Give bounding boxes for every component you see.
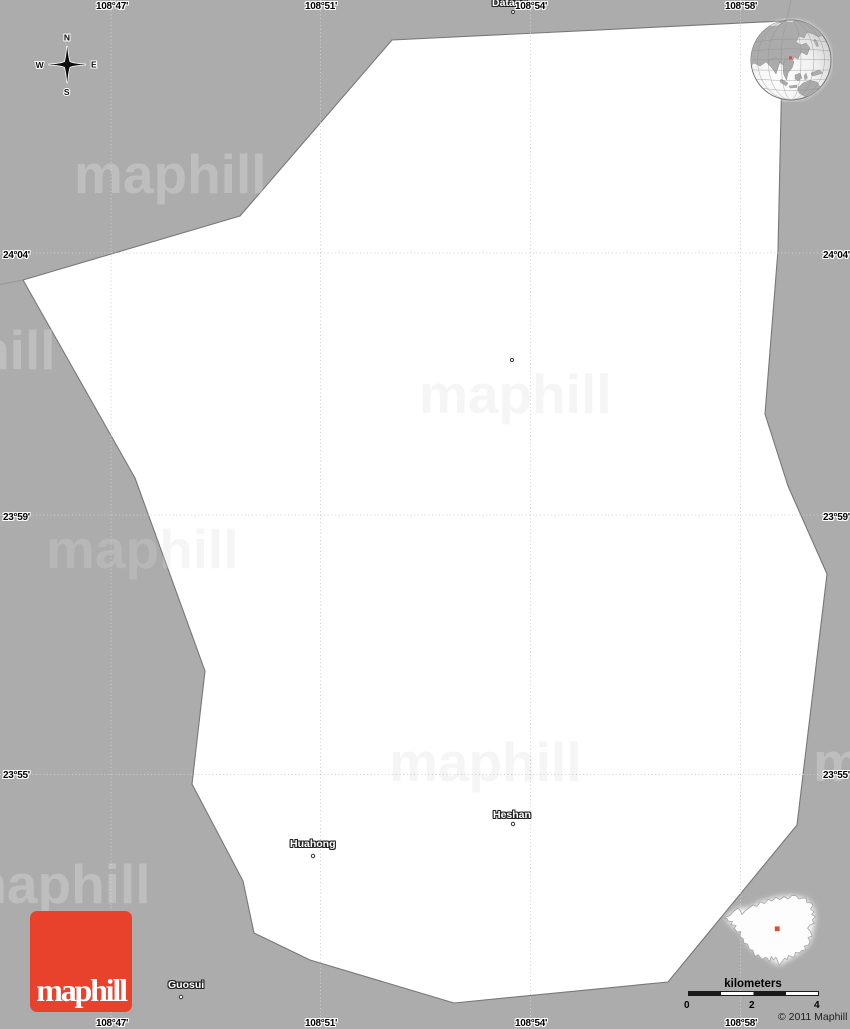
svg-text:N: N	[64, 33, 70, 43]
svg-text:W: W	[36, 60, 45, 70]
svg-text:S: S	[64, 87, 70, 97]
svg-text:E: E	[91, 59, 97, 69]
